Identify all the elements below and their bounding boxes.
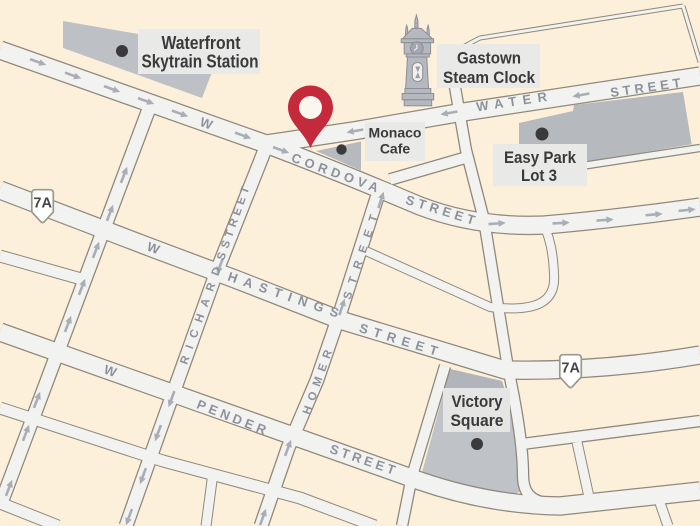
svg-text:7A: 7A	[561, 361, 580, 377]
svg-text:Skytrain Station: Skytrain Station	[142, 52, 259, 72]
svg-text:7A: 7A	[33, 196, 52, 212]
svg-text:Monaco: Monaco	[369, 125, 422, 141]
svg-text:Cafe: Cafe	[380, 141, 411, 157]
svg-text:Easy Park: Easy Park	[504, 148, 576, 167]
svg-text:Waterfront: Waterfront	[162, 33, 241, 53]
svg-text:Steam Clock: Steam Clock	[443, 68, 535, 87]
svg-text:Gastown: Gastown	[457, 49, 521, 68]
svg-text:Square: Square	[451, 411, 504, 430]
svg-text:Lot 3: Lot 3	[521, 166, 557, 185]
svg-text:Victory: Victory	[452, 392, 503, 411]
